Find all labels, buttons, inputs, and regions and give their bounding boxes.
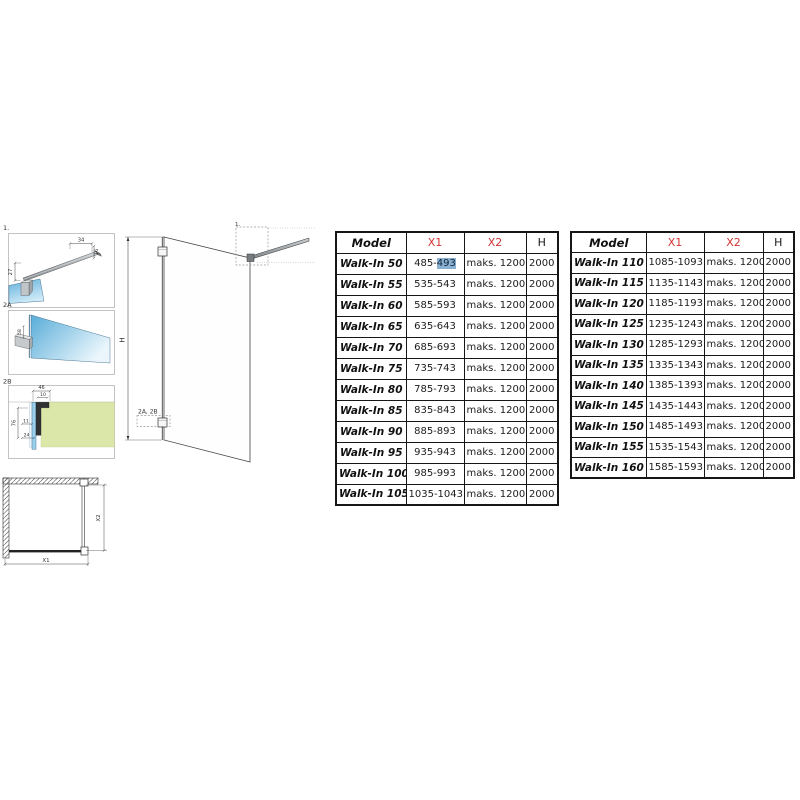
table-row: Walk-In 1451435-1443maks. 12002000 [571,396,794,417]
table-row: Walk-In 1151135-1143maks. 12002000 [571,273,794,294]
x2-cell: maks. 1200 [704,355,763,376]
model-cell: Walk-In 135 [571,355,646,376]
h-cell: 2000 [526,484,558,505]
svg-text:27: 27 [8,269,14,276]
x2-cell: maks. 1200 [464,379,526,400]
x2-cell: maks. 1200 [464,400,526,421]
h-cell: 2000 [526,379,558,400]
x2-cell: maks. 1200 [464,358,526,379]
h-cell: 2000 [526,463,558,484]
table-row: Walk-In 1351335-1343maks. 12002000 [571,355,794,376]
svg-text:16: 16 [94,249,100,256]
column-header-h: H [763,232,794,253]
dimension-x1: X1 [4,556,90,566]
model-cell: Walk-In 125 [571,314,646,335]
h-cell: 2000 [526,358,558,379]
column-header-x1: X1 [406,232,464,253]
x2-cell: maks. 1200 [464,274,526,295]
model-cell: Walk-In 70 [336,337,406,358]
h-cell: 2000 [526,316,558,337]
model-cell: Walk-In 60 [336,295,406,316]
glass-panel-outline [164,237,250,462]
x2-cell: maks. 1200 [464,295,526,316]
glass-section [32,402,36,449]
table-row: Walk-In 80785-793maks. 12002000 [336,379,558,400]
callout-1-label: 1. [235,222,240,228]
table-row: Walk-In 100985-993maks. 12002000 [336,463,558,484]
table-row: Walk-In 55535-543maks. 12002000 [336,274,558,295]
svg-text:10: 10 [40,392,46,398]
x1-cell: 1235-1243 [646,314,704,335]
svg-text:11: 11 [23,419,29,425]
x1-cell: 835-843 [406,400,464,421]
svg-text:24: 24 [24,433,30,439]
h-cell: 2000 [526,400,558,421]
x1-cell: 1285-1293 [646,335,704,356]
table-row: Walk-In 1101085-1093maks. 12002000 [571,253,794,274]
x1-cell: 1435-1443 [646,396,704,417]
x1-cell: 735-743 [406,358,464,379]
model-cell: Walk-In 130 [571,335,646,356]
glass-panel-plan [9,550,83,552]
h-label: H [119,337,127,342]
column-header-model: Model [571,232,646,253]
model-cell: Walk-In 140 [571,376,646,397]
wall-bracket-plan-bottom [81,547,88,555]
h-cell: 2000 [763,355,794,376]
x1-text: 485- [414,258,437,269]
x1-cell: 585-593 [406,295,464,316]
x1-cell: 685-693 [406,337,464,358]
x1-cell: 635-643 [406,316,464,337]
x1-cell: 1535-1543 [646,437,704,458]
x2-cell: maks. 1200 [464,316,526,337]
x2-cell: maks. 1200 [704,376,763,397]
h-cell: 2000 [763,294,794,315]
h-cell: 2000 [526,337,558,358]
model-cell: Walk-In 85 [336,400,406,421]
column-header-x2: X2 [464,232,526,253]
h-cell: 2000 [763,314,794,335]
x2-cell: maks. 1200 [704,335,763,356]
model-cell: Walk-In 150 [571,417,646,438]
h-cell: 2000 [763,417,794,438]
table-row: Walk-In 65635-643maks. 12002000 [336,316,558,337]
table-row: Walk-In 1601585-1593maks. 12002000 [571,458,794,479]
x1-cell: 485-493 [406,253,464,274]
h-cell: 2000 [763,396,794,417]
x1-cell: 1335-1343 [646,355,704,376]
table-row: Walk-In 60585-593maks. 12002000 [336,295,558,316]
model-cell: Walk-In 65 [336,316,406,337]
x2-cell: maks. 1200 [464,421,526,442]
dimension-x2: X2 [86,484,107,552]
glass-clamp [21,280,33,296]
header-row: ModelX1X2H [336,232,558,253]
svg-text:76: 76 [12,420,18,426]
left-wall [3,478,9,558]
model-cell: Walk-In 155 [571,437,646,458]
table-row: Walk-In 1251235-1243maks. 12002000 [571,314,794,335]
x1-label: X1 [42,558,49,564]
x1-cell: 785-793 [406,379,464,400]
main-perspective-drawing: H 1. 2A, 2B [118,222,315,470]
table-row: Walk-In 1051035-1043maks. 12002000 [336,484,558,505]
h-cell: 2000 [763,437,794,458]
svg-text:58: 58 [17,329,23,335]
column-header-x2: X2 [704,232,763,253]
h-cell: 2000 [763,253,794,274]
model-cell: Walk-In 145 [571,396,646,417]
h-cell: 2000 [763,458,794,479]
x2-cell: maks. 1200 [704,273,763,294]
detail-drawing-2b: 2B 46 10 76 [0,376,118,462]
model-cell: Walk-In 80 [336,379,406,400]
x2-cell: maks. 1200 [464,463,526,484]
x1-cell: 1185-1193 [646,294,704,315]
table-row: Walk-In 70685-693maks. 12002000 [336,337,558,358]
spec-table-right: ModelX1X2H Walk-In 1101085-1093maks. 120… [570,231,795,479]
h-cell: 2000 [526,274,558,295]
x2-cell: maks. 1200 [704,437,763,458]
h-cell: 2000 [763,335,794,356]
model-cell: Walk-In 75 [336,358,406,379]
drawing-2b-label: 2B [3,378,12,386]
drawing-1-label: 1. [3,224,9,232]
x1-cell: 935-943 [406,442,464,463]
x1-selected-text: 493 [437,258,456,269]
x2-label: X2 [96,514,102,521]
h-cell: 2000 [526,421,558,442]
table-row: Walk-In 85835-843maks. 12002000 [336,400,558,421]
x2-cell: maks. 1200 [704,314,763,335]
x2-cell: maks. 1200 [704,396,763,417]
h-cell: 2000 [526,295,558,316]
table-row: Walk-In 50485-493maks. 12002000 [336,253,558,274]
x1-cell: 1485-1493 [646,417,704,438]
x1-cell: 1135-1143 [646,273,704,294]
column-header-x1: X1 [646,232,704,253]
h-cell: 2000 [526,253,558,274]
model-cell: Walk-In 50 [336,253,406,274]
table-row: Walk-In 1551535-1543maks. 12002000 [571,437,794,458]
model-cell: Walk-In 95 [336,442,406,463]
table-row: Walk-In 1201185-1193maks. 12002000 [571,294,794,315]
h-cell: 2000 [763,273,794,294]
drawing-2a-label: 2A [3,301,12,309]
gasket-strip [30,402,33,447]
x1-cell: 535-543 [406,274,464,295]
column-header-model: Model [336,232,406,253]
x2-cell: maks. 1200 [704,294,763,315]
header-row: ModelX1X2H [571,232,794,253]
support-bar [247,238,309,262]
wall-bracket-top [158,247,167,256]
table-row: Walk-In 90885-893maks. 12002000 [336,421,558,442]
x2-cell: maks. 1200 [464,253,526,274]
model-cell: Walk-In 55 [336,274,406,295]
detail-drawing-2a: 2A 58 [0,298,118,378]
wall-section [41,402,115,447]
x2-cell: maks. 1200 [704,417,763,438]
wall-bracket-bottom [158,418,167,427]
model-cell: Walk-In 100 [336,463,406,484]
model-cell: Walk-In 115 [571,273,646,294]
x2-cell: maks. 1200 [704,253,763,274]
plan-view-drawing: X2 X1 [0,468,115,573]
x2-cell: maks. 1200 [464,337,526,358]
model-cell: Walk-In 120 [571,294,646,315]
model-cell: Walk-In 160 [571,458,646,479]
table-row: Walk-In 1401385-1393maks. 12002000 [571,376,794,397]
x1-cell: 1585-1593 [646,458,704,479]
table-row: Walk-In 75735-743maks. 12002000 [336,358,558,379]
column-header-h: H [526,232,558,253]
spec-table-left: ModelX1X2H Walk-In 50485-493maks. 120020… [335,231,559,506]
callout-2a2b-label: 2A, 2B [138,409,158,416]
table-row: Walk-In 1301285-1293maks. 12002000 [571,335,794,356]
x2-cell: maks. 1200 [464,484,526,505]
x2-cell: maks. 1200 [464,442,526,463]
x1-cell: 1085-1093 [646,253,704,274]
x1-cell: 1385-1393 [646,376,704,397]
h-cell: 2000 [526,442,558,463]
x1-cell: 985-993 [406,463,464,484]
model-cell: Walk-In 110 [571,253,646,274]
x2-cell: maks. 1200 [704,458,763,479]
model-cell: Walk-In 105 [336,484,406,505]
svg-text:34: 34 [78,238,85,244]
h-cell: 2000 [763,376,794,397]
x1-cell: 885-893 [406,421,464,442]
datasheet-page: 1. 34 16 [0,0,800,800]
svg-text:46: 46 [38,385,44,391]
model-cell: Walk-In 90 [336,421,406,442]
table-row: Walk-In 95935-943maks. 12002000 [336,442,558,463]
x1-cell: 1035-1043 [406,484,464,505]
table-row: Walk-In 1501485-1493maks. 12002000 [571,417,794,438]
